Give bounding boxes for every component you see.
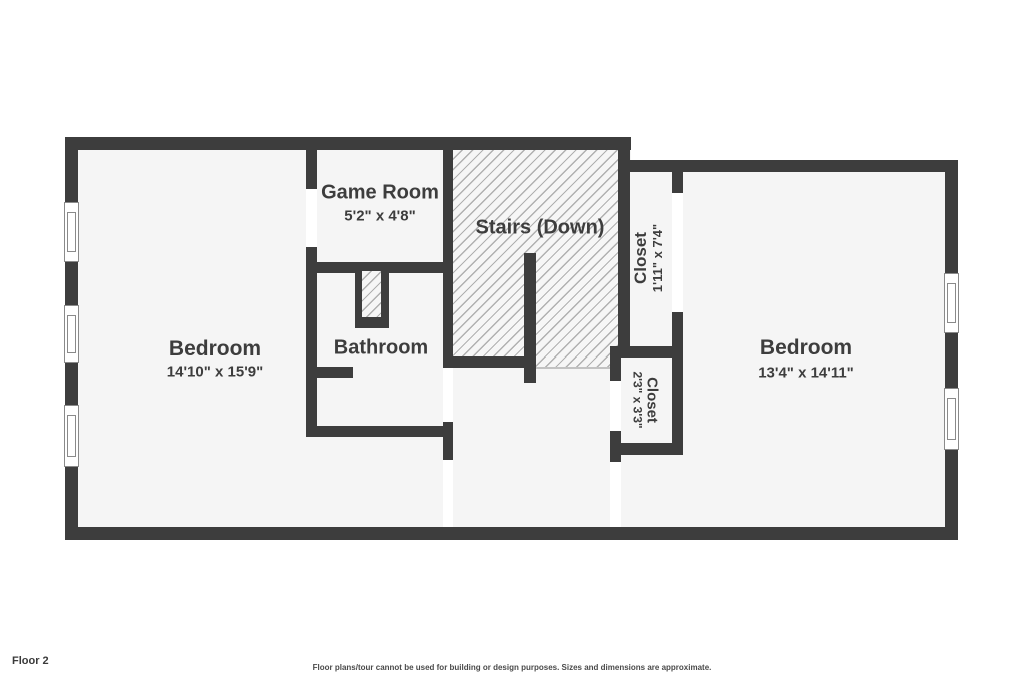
room-dims-bedroom-right: 13'4" x 14'11" xyxy=(758,364,854,381)
floorplan-canvas: Bedroom 14'10" x 15'9" Game Room 5'2" x … xyxy=(0,0,1024,683)
wall-closet-right-lower xyxy=(672,312,683,455)
wall-gameroom-left-upper xyxy=(306,137,317,189)
wall-hall-left-mid xyxy=(443,422,453,460)
window-pane xyxy=(67,212,76,252)
door-opening-closet-small xyxy=(610,381,621,431)
room-dims-game-room: 5'2" x 4'8" xyxy=(344,207,415,224)
wall-outer-top-right xyxy=(618,160,958,172)
room-label-game-room: Game Room xyxy=(321,182,439,205)
room-label-stairs: Stairs (Down) xyxy=(476,217,605,240)
window-right-1 xyxy=(944,273,959,333)
wall-bathroom-stub xyxy=(317,367,353,378)
closet-tall-name: Closet xyxy=(631,224,651,292)
wall-stairs-left xyxy=(443,137,453,368)
window-pane xyxy=(67,415,76,457)
room-label-bathroom: Bathroom xyxy=(334,337,428,360)
wall-closet-tall-right-upper xyxy=(672,160,683,193)
floor-label: Floor 2 xyxy=(12,655,49,667)
wall-stairs-bottom xyxy=(443,356,536,368)
window-left-3 xyxy=(64,405,79,467)
stairs-hatch-open-edge xyxy=(536,357,618,369)
wall-outer-bottom xyxy=(65,527,958,540)
room-label-closet-small: Closet 2'3" x 3'3" xyxy=(629,371,660,428)
door-opening-bedroom-left xyxy=(443,460,453,527)
window-pane xyxy=(947,283,956,323)
door-opening-bathroom xyxy=(443,368,453,422)
window-right-2 xyxy=(944,388,959,450)
shower-duct-hatch xyxy=(362,271,381,317)
door-opening-game-room xyxy=(306,189,317,247)
door-opening-closet-tall xyxy=(672,193,683,312)
wall-bathroom-bottom xyxy=(306,426,453,437)
door-opening-bedroom-right xyxy=(610,462,621,527)
window-pane xyxy=(67,315,76,353)
window-pane xyxy=(947,398,956,440)
wall-closet-small-bottom xyxy=(610,443,683,455)
disclaimer-text: Floor plans/tour cannot be used for buil… xyxy=(313,663,712,672)
closet-small-name: Closet xyxy=(643,371,660,428)
wall-stairs-right xyxy=(618,137,630,358)
wall-bedroom-bathroom xyxy=(306,247,317,437)
room-label-bedroom-left: Bedroom xyxy=(169,337,261,361)
wall-stairs-stub xyxy=(524,253,536,383)
window-left-1 xyxy=(64,202,79,262)
closet-tall-dims: 1'11" x 7'4" xyxy=(650,224,665,292)
room-label-closet-tall: Closet 1'11" x 7'4" xyxy=(631,224,665,292)
room-label-bedroom-right: Bedroom xyxy=(760,336,852,360)
wall-closet-small-left-upper xyxy=(610,346,621,381)
room-dims-bedroom-left: 14'10" x 15'9" xyxy=(167,363,263,380)
wall-outer-right xyxy=(945,160,958,540)
window-left-2 xyxy=(64,305,79,363)
wall-outer-top-left xyxy=(65,137,631,150)
closet-small-dims: 2'3" x 3'3" xyxy=(629,371,643,428)
